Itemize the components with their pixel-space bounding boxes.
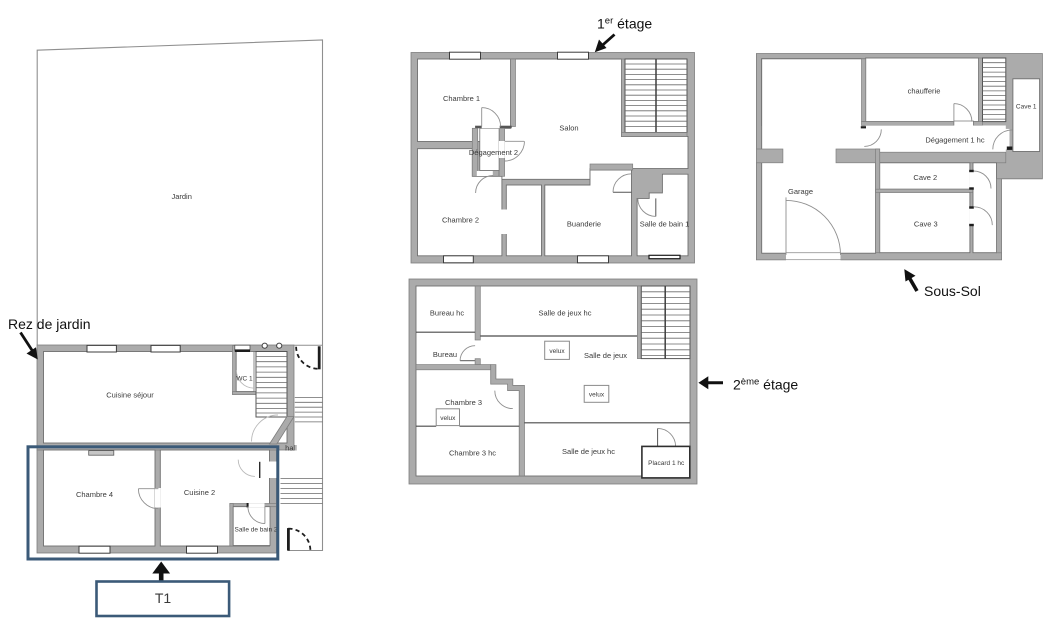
svg-text:Salle de bain 2: Salle de bain 2 xyxy=(234,527,277,534)
svg-text:Jardin: Jardin xyxy=(171,192,191,201)
svg-text:Rez de jardin: Rez de jardin xyxy=(8,316,91,332)
svg-text:Cave 3: Cave 3 xyxy=(914,220,938,229)
svg-text:Salle de jeux hc: Salle de jeux hc xyxy=(539,309,592,318)
svg-text:1er étage: 1er étage xyxy=(597,16,652,32)
svg-text:Cuisine 2: Cuisine 2 xyxy=(184,488,215,497)
svg-text:Cave 1: Cave 1 xyxy=(1016,104,1037,111)
svg-text:Salon: Salon xyxy=(559,124,578,133)
svg-text:velux: velux xyxy=(440,415,456,422)
svg-text:Dégagement 2: Dégagement 2 xyxy=(469,148,518,157)
svg-text:Chambre 3 hc: Chambre 3 hc xyxy=(449,449,496,458)
svg-text:Chambre 2: Chambre 2 xyxy=(442,216,479,225)
svg-text:Buanderie: Buanderie xyxy=(567,220,601,229)
svg-text:Sous-Sol: Sous-Sol xyxy=(924,283,981,299)
svg-text:Cave 2: Cave 2 xyxy=(913,173,937,182)
svg-text:velux: velux xyxy=(549,348,565,355)
svg-text:Salle de jeux hc: Salle de jeux hc xyxy=(562,447,615,456)
svg-text:Chambre 4: Chambre 4 xyxy=(76,490,113,499)
svg-text:T1: T1 xyxy=(155,590,172,606)
svg-text:Cuisine séjour: Cuisine séjour xyxy=(106,391,154,400)
svg-text:Chambre 1: Chambre 1 xyxy=(443,94,480,103)
svg-text:2ème étage: 2ème étage xyxy=(733,377,798,393)
svg-text:velux: velux xyxy=(589,392,605,399)
svg-text:Salle de jeux: Salle de jeux xyxy=(584,351,627,360)
svg-text:WC 1: WC 1 xyxy=(236,376,253,383)
svg-text:Dégagement 1 hc: Dégagement 1 hc xyxy=(925,136,984,145)
svg-text:chaufferie: chaufferie xyxy=(908,87,941,96)
svg-text:Chambre 3: Chambre 3 xyxy=(445,398,482,407)
svg-text:Bureau: Bureau xyxy=(433,350,457,359)
svg-text:hall: hall xyxy=(285,444,297,453)
svg-text:Placard 1 hc: Placard 1 hc xyxy=(648,460,685,467)
svg-text:Salle de bain 1: Salle de bain 1 xyxy=(640,220,690,229)
svg-text:Bureau hc: Bureau hc xyxy=(430,309,464,318)
svg-text:Garage: Garage xyxy=(788,187,813,196)
